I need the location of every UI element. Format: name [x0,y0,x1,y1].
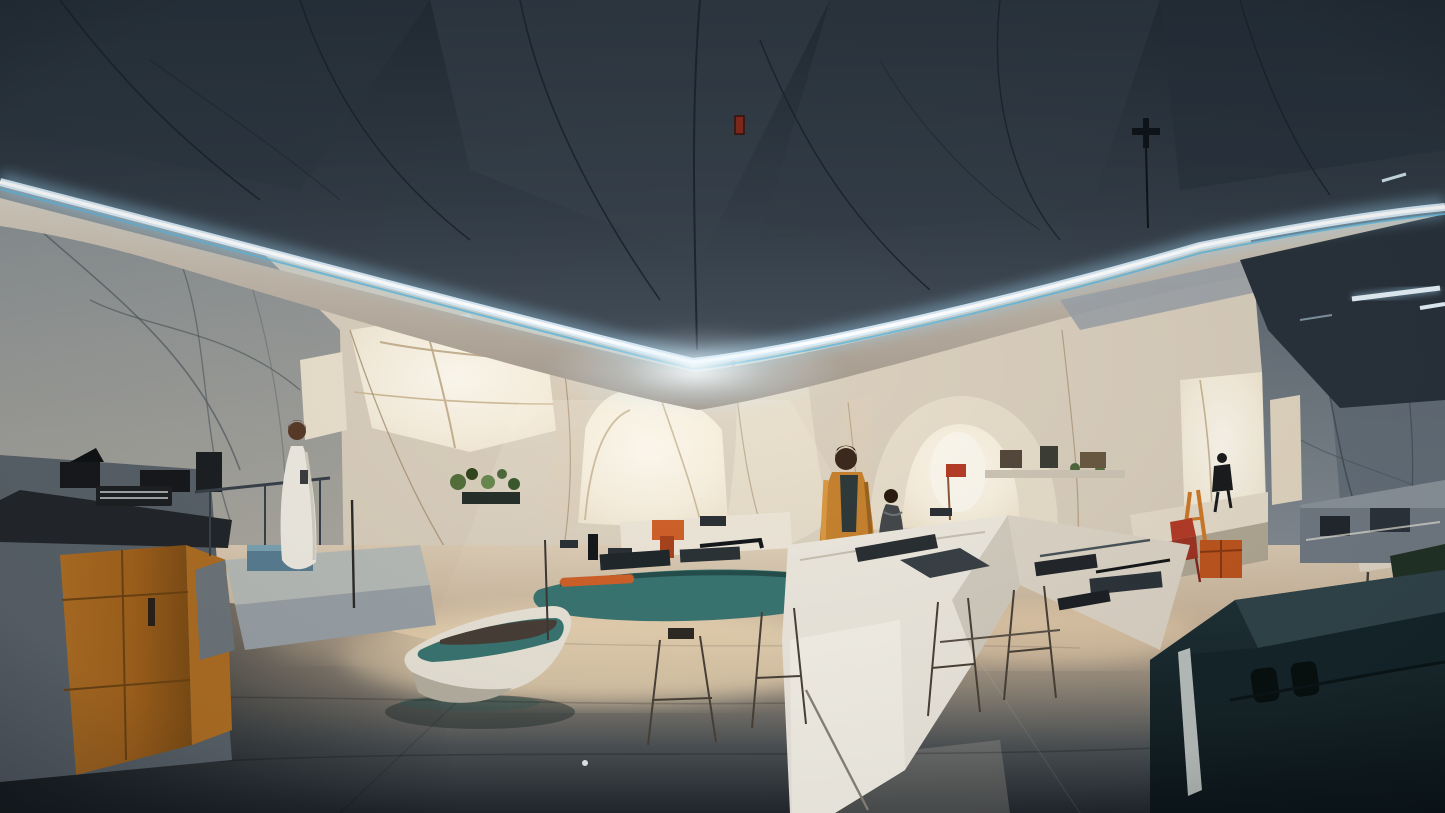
scene-canvas [0,0,1445,813]
scene-artwork [0,0,1445,813]
vignette-overlay [0,0,1445,813]
